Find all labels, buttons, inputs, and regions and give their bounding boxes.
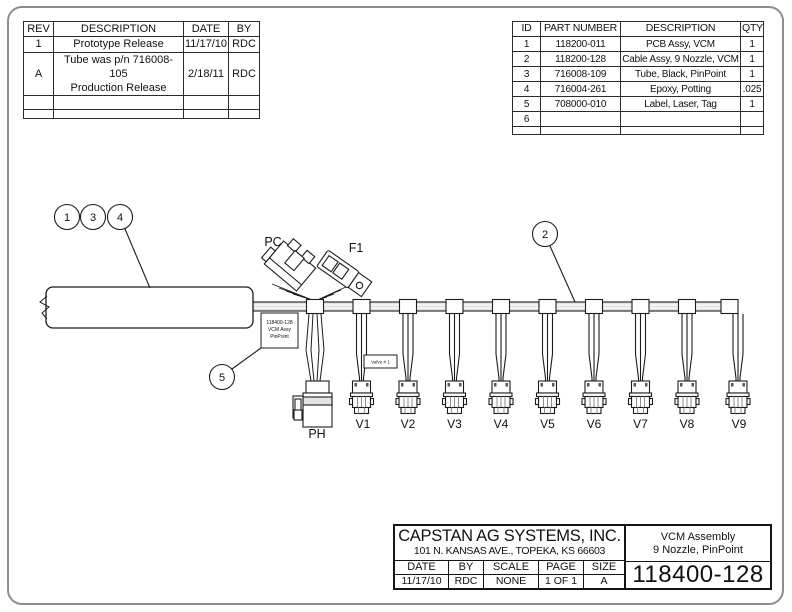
id-cell: 5 bbox=[513, 97, 541, 112]
by-col-header: BY bbox=[229, 22, 260, 37]
drawing-number: 118400-128 bbox=[626, 562, 770, 588]
part-number-cell: 118200-011 bbox=[541, 37, 621, 52]
valve-label: V1 bbox=[356, 417, 371, 431]
company-address: 101 N. KANSAS AVE., TOPEKA, KS 66603 bbox=[395, 545, 624, 557]
valve-label: V7 bbox=[633, 417, 648, 431]
by-field-value: RDC bbox=[449, 575, 483, 588]
part-row: 2 118200-128 Cable Assy, 9 Nozzle, VCM 1 bbox=[513, 52, 764, 67]
parts-table-header-row: ID PART NUMBER DESCRIPTION QTY bbox=[513, 22, 764, 37]
by-cell: RDC bbox=[229, 52, 260, 96]
company-name: CAPSTAN AG SYSTEMS, INC. bbox=[395, 528, 624, 545]
f1-label: F1 bbox=[349, 241, 364, 255]
field-page: PAGE 1 OF 1 bbox=[539, 561, 584, 588]
by-field-label: BY bbox=[449, 561, 483, 575]
qty-cell bbox=[741, 112, 764, 127]
date-field-value: 11/17/10 bbox=[395, 575, 448, 588]
valve-label: V6 bbox=[587, 417, 602, 431]
valve-connectors bbox=[350, 314, 751, 414]
field-size: SIZE A bbox=[584, 561, 624, 588]
revision-row-empty bbox=[24, 110, 260, 119]
part-number-cell: 716008-109 bbox=[541, 67, 621, 82]
size-field-label: SIZE bbox=[584, 561, 624, 575]
part-number-cell: 716004-261 bbox=[541, 82, 621, 97]
drawing-sheet: 1 3 4 2 5 PC F1 PH V1 V2 V3 V4 V5 V6 V7 … bbox=[0, 0, 792, 612]
qty-cell: 1 bbox=[741, 67, 764, 82]
revision-row-empty bbox=[24, 96, 260, 110]
description-cell: Tube was p/n 716008-105 Production Relea… bbox=[54, 52, 184, 96]
revision-row: A Tube was p/n 716008-105 Production Rel… bbox=[24, 52, 260, 96]
id-col-header: ID bbox=[513, 22, 541, 37]
leader-balloon-5 bbox=[232, 348, 261, 369]
size-field-value: A bbox=[584, 575, 624, 588]
title-block-fields: DATE 11/17/10 BY RDC SCALE NONE PAGE 1 O… bbox=[395, 560, 624, 588]
pc-label: PC bbox=[264, 235, 281, 249]
id-cell: 4 bbox=[513, 82, 541, 97]
leader-balloon-4 bbox=[125, 229, 150, 288]
qty-cell: 1 bbox=[741, 37, 764, 52]
valve-label: V9 bbox=[732, 417, 747, 431]
description-cell: Label, Laser, Tag bbox=[621, 97, 741, 112]
balloon-1-number: 1 bbox=[64, 212, 70, 224]
field-scale: SCALE NONE bbox=[484, 561, 539, 588]
id-cell: 3 bbox=[513, 67, 541, 82]
title-block: CAPSTAN AG SYSTEMS, INC. 101 N. KANSAS A… bbox=[393, 524, 772, 590]
parts-table: ID PART NUMBER DESCRIPTION QTY 1 118200-… bbox=[512, 21, 764, 135]
qty-col-header: QTY bbox=[741, 22, 764, 37]
f1-fuse-holder bbox=[317, 250, 373, 297]
qty-cell: 1 bbox=[741, 97, 764, 112]
id-cell: 2 bbox=[513, 52, 541, 67]
page-field-label: PAGE bbox=[539, 561, 583, 575]
description-cell: Cable Assy, 9 Nozzle, VCM bbox=[621, 52, 741, 67]
revision-table: REV DESCRIPTION DATE BY 1 Prototype Rele… bbox=[23, 21, 260, 119]
title-block-left: CAPSTAN AG SYSTEMS, INC. 101 N. KANSAS A… bbox=[395, 526, 626, 588]
balloon-4-number: 4 bbox=[117, 212, 123, 224]
revision-table-header-row: REV DESCRIPTION DATE BY bbox=[24, 22, 260, 37]
part-number-cell bbox=[541, 112, 621, 127]
rev-cell: 1 bbox=[24, 37, 54, 52]
revision-row: 1 Prototype Release 11/17/10 RDC bbox=[24, 37, 260, 52]
drawing-title: VCM Assembly 9 Nozzle, PinPoint bbox=[626, 526, 770, 562]
description-cell: Epoxy, Potting bbox=[621, 82, 741, 97]
company-info: CAPSTAN AG SYSTEMS, INC. 101 N. KANSAS A… bbox=[395, 526, 624, 560]
assembly-tag-line2: VCM Assy bbox=[268, 327, 292, 333]
balloon-5-number: 5 bbox=[219, 372, 225, 384]
title-block-right: VCM Assembly 9 Nozzle, PinPoint 118400-1… bbox=[626, 526, 770, 588]
scale-field-label: SCALE bbox=[484, 561, 538, 575]
assembly-tag-line1: 118400-128 bbox=[266, 320, 293, 326]
part-row: 5 708000-010 Label, Laser, Tag 1 bbox=[513, 97, 764, 112]
description-col-header: DESCRIPTION bbox=[54, 22, 184, 37]
description-cell: PCB Assy, VCM bbox=[621, 37, 741, 52]
part-row: 4 716004-261 Epoxy, Potting .025 bbox=[513, 82, 764, 97]
part-number-cell: 118200-128 bbox=[541, 52, 621, 67]
part-number-cell: 708000-010 bbox=[541, 97, 621, 112]
balloon-3-number: 3 bbox=[90, 212, 96, 224]
valve-label: V5 bbox=[540, 417, 555, 431]
rev-cell: A bbox=[24, 52, 54, 96]
ph-label: PH bbox=[308, 427, 325, 441]
description-col-header: DESCRIPTION bbox=[621, 22, 741, 37]
description-cell bbox=[621, 112, 741, 127]
leader-balloon-2 bbox=[550, 246, 575, 302]
scale-field-value: NONE bbox=[484, 575, 538, 588]
qty-cell: 1 bbox=[741, 52, 764, 67]
page-field-value: 1 OF 1 bbox=[539, 575, 583, 588]
balloon-2-number: 2 bbox=[542, 229, 548, 241]
wire-fan bbox=[272, 284, 348, 301]
valve-label: V4 bbox=[494, 417, 509, 431]
date-field-label: DATE bbox=[395, 561, 448, 575]
part-number-col-header: PART NUMBER bbox=[541, 22, 621, 37]
date-cell: 2/18/11 bbox=[184, 52, 229, 96]
drawing-title-line2: 9 Nozzle, PinPoint bbox=[626, 544, 770, 557]
field-by: BY RDC bbox=[449, 561, 484, 588]
valve-label: V3 bbox=[447, 417, 462, 431]
id-cell: 1 bbox=[513, 37, 541, 52]
by-cell: RDC bbox=[229, 37, 260, 52]
part-row: 3 716008-109 Tube, Black, PinPoint 1 bbox=[513, 67, 764, 82]
id-cell: 6 bbox=[513, 112, 541, 127]
valve-label: V8 bbox=[680, 417, 695, 431]
part-row: 1 118200-011 PCB Assy, VCM 1 bbox=[513, 37, 764, 52]
assembly-tag-line3: PinPoint bbox=[270, 334, 289, 340]
qty-cell: .025 bbox=[741, 82, 764, 97]
valve-label: V2 bbox=[401, 417, 416, 431]
date-cell: 11/17/10 bbox=[184, 37, 229, 52]
tube bbox=[40, 287, 253, 328]
drawing-title-line1: VCM Assembly bbox=[626, 531, 770, 544]
part-row: 6 bbox=[513, 112, 764, 127]
description-cell: Tube, Black, PinPoint bbox=[621, 67, 741, 82]
part-row-empty bbox=[513, 127, 764, 135]
description-cell: Prototype Release bbox=[54, 37, 184, 52]
valve1-tag-text: Valve # 1 bbox=[371, 360, 390, 365]
field-date: DATE 11/17/10 bbox=[395, 561, 449, 588]
rev-col-header: REV bbox=[24, 22, 54, 37]
ph-connector bbox=[293, 314, 332, 427]
date-col-header: DATE bbox=[184, 22, 229, 37]
